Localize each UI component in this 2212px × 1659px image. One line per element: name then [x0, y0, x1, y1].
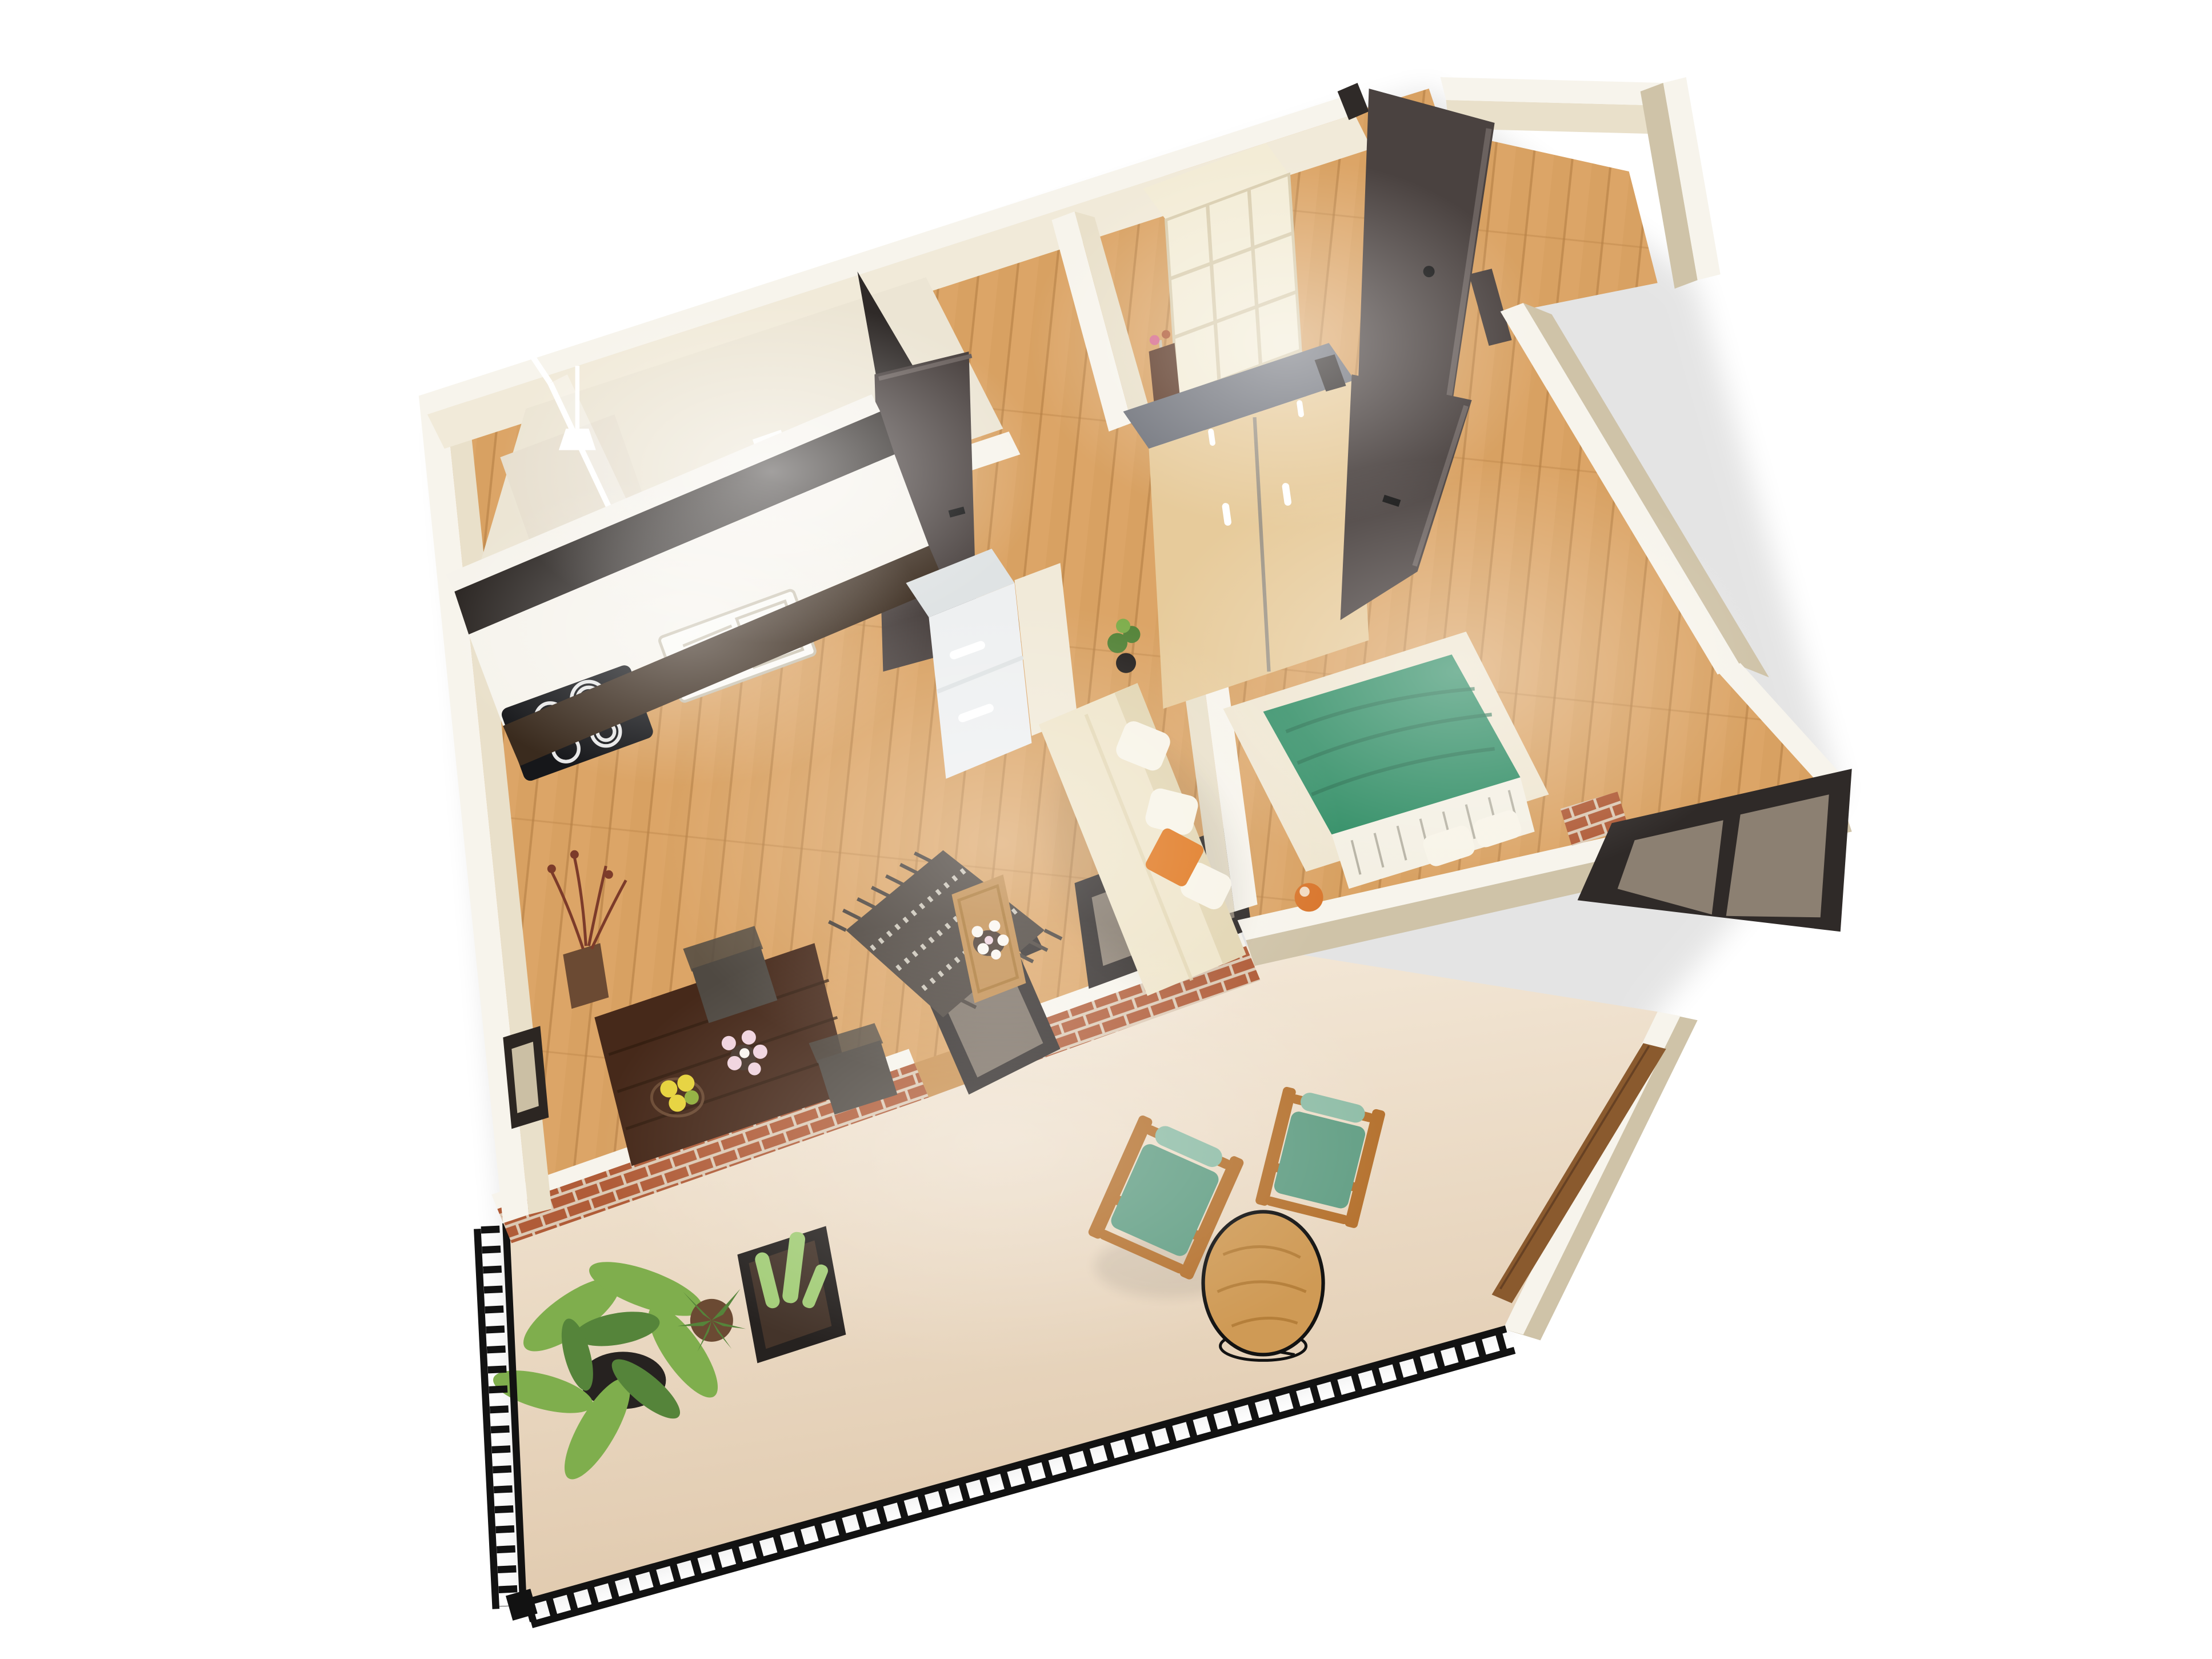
entrance-door-handle — [1423, 266, 1435, 277]
floorplan-svg — [0, 0, 2212, 1659]
orange-bedside-lamp — [1295, 883, 1323, 912]
apartment-render-stage — [0, 0, 2212, 1659]
